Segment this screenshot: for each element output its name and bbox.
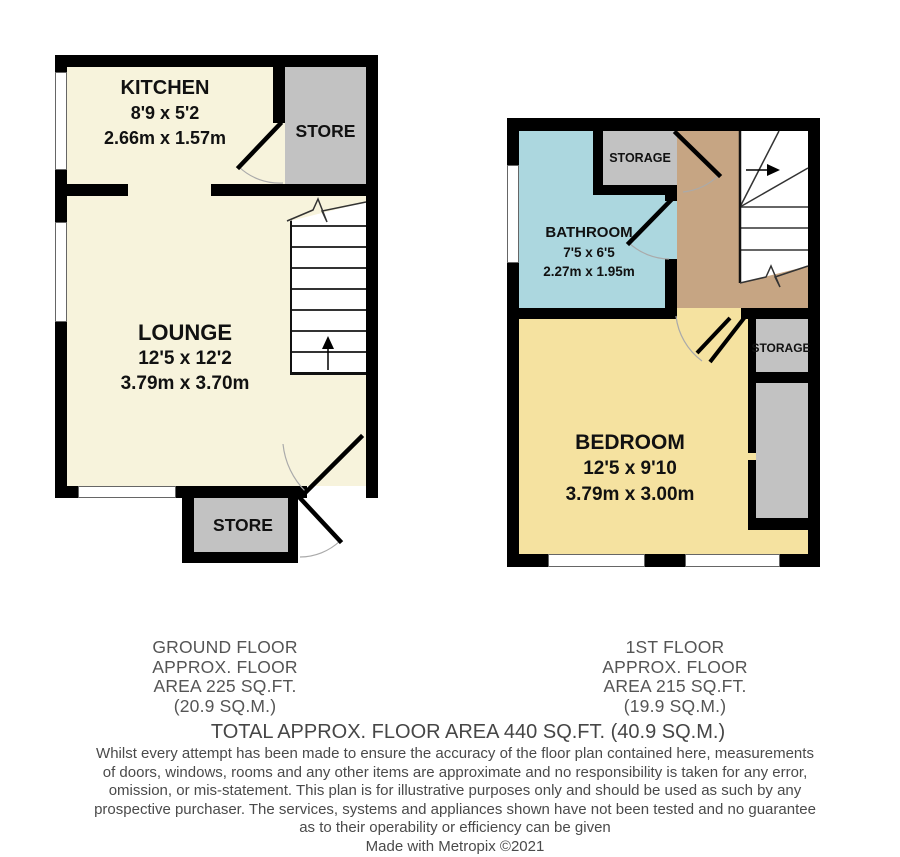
room-dims-ft: 12'5 x 9'10	[518, 456, 742, 482]
door-swing-arc	[300, 541, 340, 557]
disclaimer-line: prospective purchaser. The services, sys…	[50, 801, 860, 820]
stair-tread	[292, 246, 366, 248]
bedroom-window-right	[685, 554, 780, 567]
summary-line: GROUND FLOOR	[75, 638, 375, 658]
ground-floor-summary: GROUND FLOOR APPROX. FLOOR AREA 225 SQ.F…	[75, 638, 375, 716]
room-dims-ft: 7'5 x 6'5	[510, 243, 668, 262]
summary-line: 1ST FLOOR	[525, 638, 825, 658]
wall	[741, 308, 820, 319]
room-dims-ft: 12'5 x 12'2	[75, 346, 295, 371]
room-name: BATHROOM	[510, 223, 668, 243]
summary-line: AREA 225 SQ.FT.	[75, 677, 375, 697]
disclaimer-text: Whilst every attempt has been made to en…	[50, 745, 860, 857]
stair-tread	[292, 267, 366, 269]
disclaimer-line: as to their operability or efficiency ca…	[50, 819, 860, 838]
store-bottom-label: STORE	[193, 515, 293, 537]
summary-line: (20.9 SQ.M.)	[75, 697, 375, 717]
lounge-window	[55, 222, 67, 322]
wall	[55, 184, 128, 196]
room-dims-m: 2.27m x 1.95m	[510, 262, 668, 281]
storage-right-label: STORAGE	[746, 341, 816, 356]
wall	[748, 383, 756, 453]
wall	[182, 552, 298, 563]
stair-tread	[292, 288, 366, 290]
store-top-label: STORE	[281, 121, 370, 143]
wall	[748, 518, 808, 530]
lounge-bottom-window	[78, 486, 176, 498]
summary-line: AREA 215 SQ.FT.	[525, 677, 825, 697]
room-name: KITCHEN	[65, 76, 265, 101]
summary-line: APPROX. FLOOR	[75, 658, 375, 678]
first-floor-summary: 1ST FLOOR APPROX. FLOOR AREA 215 SQ.FT. …	[525, 638, 825, 716]
wall	[507, 118, 820, 131]
summary-line: (19.9 SQ.M.)	[525, 697, 825, 717]
ground-floor-staircase	[290, 202, 366, 375]
storage-top-label: STORAGE	[599, 151, 681, 167]
total-floor-area: TOTAL APPROX. FLOOR AREA 440 SQ.FT. (40.…	[68, 721, 868, 744]
room-dims-ft: 8'9 x 5'2	[65, 101, 265, 126]
floorplan-page: { "ground_floor": { "kitchen": { "name":…	[0, 0, 900, 855]
room-dims-m: 3.79m x 3.00m	[518, 482, 742, 508]
stair-tread	[292, 309, 366, 311]
stair-tread	[292, 330, 366, 332]
disclaimer-line: of doors, windows, rooms and any other i…	[50, 764, 860, 783]
bedroom-label: BEDROOM 12'5 x 9'10 3.79m x 3.00m	[518, 429, 742, 508]
bedroom-window-left	[548, 554, 645, 567]
wall	[273, 67, 285, 123]
wall	[211, 184, 366, 196]
room-name: LOUNGE	[75, 320, 295, 346]
wall	[748, 460, 756, 518]
store-bottom-door	[300, 498, 340, 541]
room-name: BEDROOM	[518, 429, 742, 456]
disclaimer-line: omission, or mis-statement. This plan is…	[50, 782, 860, 801]
bathroom-label: BATHROOM 7'5 x 6'5 2.27m x 1.95m	[510, 223, 668, 281]
wall	[748, 372, 808, 383]
kitchen-label: KITCHEN 8'9 x 5'2 2.66m x 1.57m	[65, 76, 265, 151]
room-dims-m: 2.66m x 1.57m	[65, 126, 265, 151]
stair-tread	[292, 351, 366, 353]
wall	[665, 185, 677, 201]
stair-tread	[292, 225, 366, 227]
bedroom-closet	[756, 383, 808, 518]
lounge-label: LOUNGE 12'5 x 12'2 3.79m x 3.70m	[75, 320, 295, 396]
summary-line: APPROX. FLOOR	[525, 658, 825, 678]
wall	[55, 55, 378, 67]
disclaimer-line: Whilst every attempt has been made to en…	[50, 745, 860, 764]
wall	[507, 308, 677, 319]
room-dims-m: 3.79m x 3.70m	[75, 371, 295, 396]
metropix-credit: Made with Metropix ©2021	[50, 838, 860, 857]
landing-area	[677, 131, 808, 308]
